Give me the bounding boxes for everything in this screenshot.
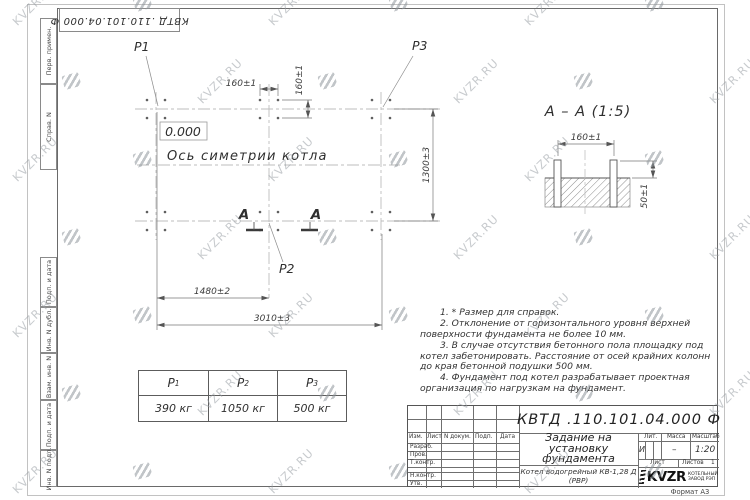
plan-view: P1 P3 P2 0.000 Ось симетрии котла 160±1 … bbox=[134, 38, 440, 330]
section-dim-50-lines bbox=[620, 161, 657, 178]
dim-height: 1300±3 bbox=[422, 147, 432, 183]
section-dim-protrusion: 50±1 bbox=[640, 184, 650, 209]
load-label-p3: P3 bbox=[412, 38, 428, 53]
load-label-p2: P2 bbox=[279, 261, 295, 276]
drawing-linework: P1 P3 P2 0.000 Ось симетрии котла 160±1 … bbox=[0, 0, 750, 500]
section-cut-marks: А А bbox=[238, 207, 321, 230]
dim-center: 1480±2 bbox=[194, 287, 230, 297]
dim-pitch-h: 160±1 bbox=[226, 79, 256, 89]
load-label-p1: P1 bbox=[134, 39, 150, 54]
anchor-bolt-right bbox=[610, 160, 617, 207]
drawing-sheet: КВТД .110.101.04.000 Ф Перв. примен. Спр… bbox=[0, 0, 750, 500]
anchor-bolt-left bbox=[554, 160, 561, 207]
section-view: А – А (1:5) 160±1 50±1 bbox=[544, 104, 657, 214]
section-letter-right: А bbox=[310, 207, 321, 223]
section-dim-pitch: 160±1 bbox=[571, 133, 601, 143]
dim-pitch-v: 160±1 bbox=[295, 65, 305, 95]
section-title: А – А (1:5) bbox=[544, 104, 632, 120]
elevation-value: 0.000 bbox=[165, 124, 201, 139]
section-letter-left: А bbox=[238, 207, 249, 223]
axis-label: Ось симетрии котла bbox=[167, 149, 328, 164]
dim-length: 3010±3 bbox=[254, 314, 290, 324]
